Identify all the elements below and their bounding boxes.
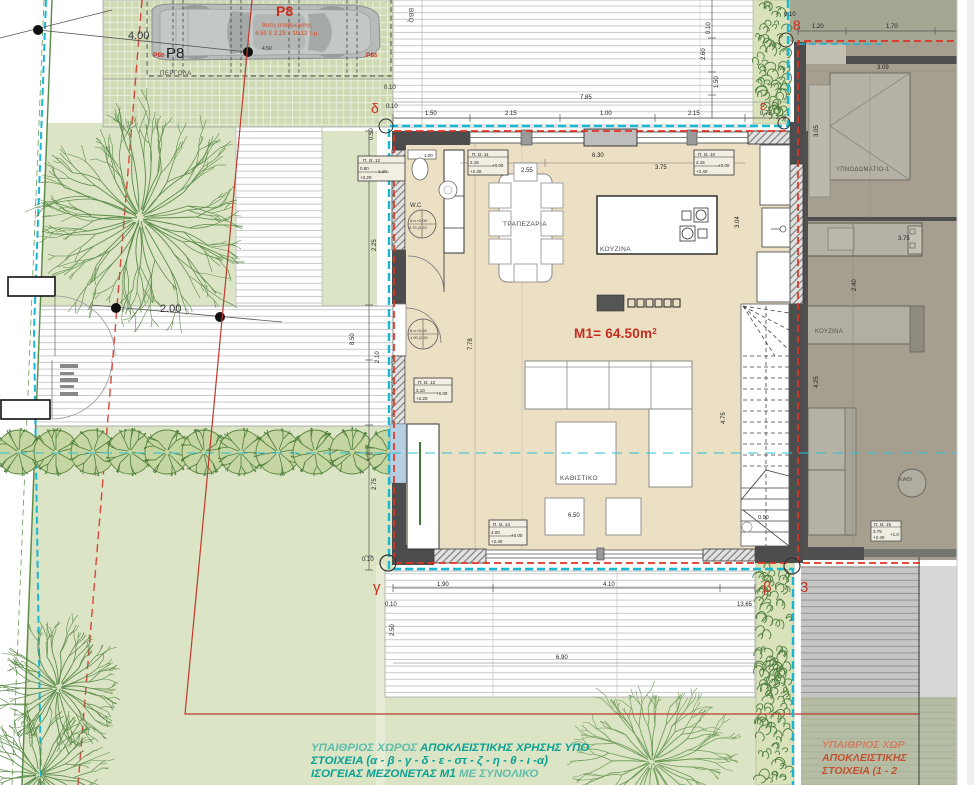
svg-text:2.15: 2.15: [470, 160, 479, 165]
svg-text:+2.40: +2.40: [696, 169, 708, 174]
svg-text:2.15: 2.15: [688, 111, 700, 117]
svg-text:1.50: 1.50: [425, 111, 437, 117]
svg-text:ΥΠΑΙΘΡΙΟΣ ΧΩΡΟΣ ΑΠΟΚΛΕΙΣΤΙΚΗΣ: ΥΠΑΙΘΡΙΟΣ ΧΩΡΟΣ ΑΠΟΚΛΕΙΣΤΙΚΗΣ ΧΡΗΣΗΣ ΥΠΟ: [311, 742, 589, 754]
svg-text:ΣΤΟΙΧΕΙΑ (1 - 2: ΣΤΟΙΧΕΙΑ (1 - 2: [821, 765, 897, 777]
svg-text:4.50 Χ 2.25 = 10.12 τ.μ.: 4.50 Χ 2.25 = 10.12 τ.μ.: [255, 31, 319, 37]
svg-text:+1.0: +1.0: [890, 532, 899, 537]
svg-text:δ: δ: [371, 100, 379, 116]
svg-text:Π. Ι2. 11: Π. Ι2. 11: [472, 152, 489, 157]
svg-text:+2.40: +2.40: [470, 169, 482, 174]
svg-text:θ.α.+0.00: θ.α.+0.00: [410, 328, 428, 333]
svg-text:4.00: 4.00: [128, 30, 149, 42]
svg-text:θέση στάθμευσης: θέση στάθμευσης: [262, 23, 312, 29]
svg-text:ΙΣΟΓΕΙΑΣ ΜΕΖΟΝΕΤΑΣ Μ1 ΜΕ ΣΥΝΟΛ: ΙΣΟΓΕΙΑΣ ΜΕΖΟΝΕΤΑΣ Μ1 ΜΕ ΣΥΝΟΛΙΚΟ: [311, 768, 538, 780]
svg-text:0.10: 0.10: [384, 85, 396, 91]
svg-text:3.75: 3.75: [898, 236, 910, 242]
svg-text:Π. Ι2. 13: Π. Ι2. 13: [418, 380, 436, 385]
svg-text:ΚΑΘΙ: ΚΑΘΙ: [899, 477, 912, 483]
svg-text:1.10: 1.10: [378, 169, 387, 174]
svg-text:2.00: 2.00: [160, 303, 181, 315]
svg-text:3.75: 3.75: [873, 529, 882, 534]
svg-text:1.00: 1.00: [424, 153, 433, 158]
svg-text:4.25: 4.25: [814, 376, 820, 388]
svg-text:ΑΠΟΚΛΕΙΣΤΙΚΗΣ: ΑΠΟΚΛΕΙΣΤΙΚΗΣ: [821, 752, 907, 764]
svg-text:+2.20: +2.20: [360, 175, 372, 180]
svg-text:8.50: 8.50: [350, 333, 356, 345]
svg-text:6.90: 6.90: [556, 655, 568, 661]
svg-text:1.00 |2.20: 1.00 |2.20: [410, 335, 428, 340]
svg-text:ΤΡΑΠΕΖΑΡΙΑ: ΤΡΑΠΕΖΑΡΙΑ: [503, 221, 547, 228]
svg-text:6.30: 6.30: [592, 153, 604, 159]
svg-text:Π. Ι2. 12: Π. Ι2. 12: [363, 158, 381, 163]
svg-text:2.25: 2.25: [372, 239, 378, 251]
svg-text:ΥΠΝΟΔΩΜΑΤΙΟ-1: ΥΠΝΟΔΩΜΑΤΙΟ-1: [836, 167, 890, 173]
svg-text:4.00: 4.00: [491, 530, 500, 535]
svg-text:3.09: 3.09: [877, 65, 889, 71]
svg-text:0.75: 0.75: [760, 111, 772, 117]
svg-text:4.10: 4.10: [603, 582, 615, 588]
svg-text:+0.00: +0.00: [718, 163, 730, 168]
svg-text:3.10: 3.10: [416, 388, 425, 393]
svg-text:P8δ: P8δ: [153, 52, 164, 59]
svg-text:ΥΠΑΙΘΡΙΟΣ ΧΩΡ: ΥΠΑΙΘΡΙΟΣ ΧΩΡ: [822, 739, 906, 751]
svg-text:1.00: 1.00: [600, 111, 612, 117]
svg-text:0.50: 0.50: [369, 128, 375, 140]
svg-text:4.75: 4.75: [721, 412, 727, 424]
svg-text:+2.40: +2.40: [873, 535, 885, 540]
svg-text:0.10: 0.10: [706, 22, 712, 34]
svg-text:Π. Ι2. 14: Π. Ι2. 14: [493, 522, 511, 527]
svg-text:+0.00: +0.00: [511, 533, 523, 538]
svg-text:8: 8: [793, 17, 801, 33]
svg-text:γ: γ: [373, 579, 381, 596]
svg-text:2.15: 2.15: [505, 111, 517, 117]
svg-text:2.40: 2.40: [852, 279, 858, 291]
svg-text:P8δ: P8δ: [366, 52, 377, 59]
svg-text:+2.40: +2.40: [491, 539, 503, 544]
svg-text:Π. Ι2. 10: Π. Ι2. 10: [698, 152, 716, 157]
svg-text:0.80: 0.80: [360, 166, 369, 171]
svg-text:θ.α.+0.00: θ.α.+0.00: [410, 218, 428, 223]
svg-text:1.70: 1.70: [886, 24, 898, 30]
svg-text:BBQ: BBQ: [407, 8, 414, 23]
svg-text:4.50: 4.50: [262, 46, 272, 52]
svg-text:ΚΟΥΖΙΝΑ: ΚΟΥΖΙΝΑ: [815, 329, 843, 335]
svg-text:2.10: 2.10: [375, 351, 381, 363]
svg-text:1.20: 1.20: [812, 24, 824, 30]
svg-text:+0.00: +0.00: [436, 391, 448, 396]
svg-text:3.75: 3.75: [655, 165, 667, 171]
svg-text:3: 3: [800, 579, 808, 596]
svg-text:2.55: 2.55: [521, 168, 533, 174]
svg-text:2.75: 2.75: [372, 478, 378, 490]
svg-text:P8: P8: [166, 45, 184, 62]
svg-text:Π. Ι2. 15: Π. Ι2. 15: [874, 522, 892, 527]
svg-text:6.50: 6.50: [568, 513, 580, 519]
svg-text:0.90: 0.90: [758, 515, 769, 521]
svg-text:ΠΕΡΓΟΛΑ: ΠΕΡΓΟΛΑ: [160, 71, 192, 77]
svg-text:7.78: 7.78: [468, 338, 474, 350]
svg-text:2.15: 2.15: [696, 160, 705, 165]
svg-text:0.10: 0.10: [385, 602, 397, 608]
svg-text:2.60: 2.60: [701, 48, 707, 60]
svg-text:0.10: 0.10: [362, 557, 374, 563]
svg-text:1.50: 1.50: [714, 76, 720, 88]
svg-text:P8: P8: [276, 3, 293, 19]
svg-text:W.C: W.C: [410, 203, 422, 209]
svg-text:1.90: 1.90: [437, 582, 449, 588]
svg-text:0.10: 0.10: [386, 104, 398, 110]
svg-text:β: β: [763, 579, 772, 596]
svg-text:3.04: 3.04: [735, 216, 741, 228]
svg-text:+0.00: +0.00: [492, 163, 504, 168]
svg-text:ΚΟΥΖΙΝΑ: ΚΟΥΖΙΝΑ: [600, 246, 631, 253]
svg-text:0.70 |2.20: 0.70 |2.20: [409, 225, 427, 230]
svg-text:0.10: 0.10: [784, 12, 796, 18]
svg-text:3.05: 3.05: [814, 125, 820, 137]
svg-text:2.50: 2.50: [390, 624, 396, 636]
svg-text:13.65: 13.65: [737, 602, 753, 608]
svg-text:+2.20: +2.20: [416, 396, 428, 401]
svg-text:M1= 64.50m2: M1= 64.50m2: [574, 326, 657, 341]
svg-text:ΚΑΘΙΣΤΙΚΟ: ΚΑΘΙΣΤΙΚΟ: [560, 475, 598, 482]
svg-text:7.85: 7.85: [580, 95, 592, 101]
svg-text:ΣΤΟΙΧΕΙΑ (α - β - γ - δ - ε -: ΣΤΟΙΧΕΙΑ (α - β - γ - δ - ε - στ - ζ - η…: [310, 755, 548, 767]
